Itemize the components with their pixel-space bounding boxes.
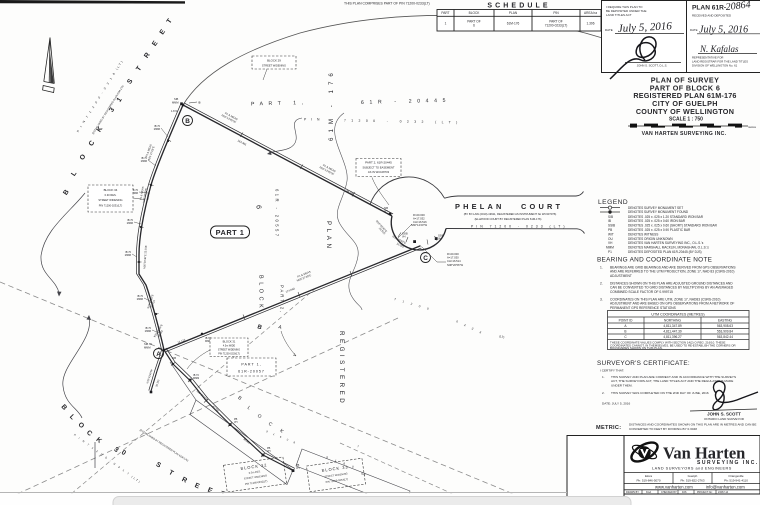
svg-text:PLAN: PLAN	[325, 221, 332, 252]
svg-text:ADJUSTMENT: ADJUSTMENT	[610, 274, 632, 278]
svg-text:PART 1: PART 1	[216, 228, 245, 237]
svg-text:REGISTERED: REGISTERED	[338, 331, 345, 406]
svg-text:DATE: JULY 5, 2016: DATE: JULY 5, 2016	[602, 402, 630, 406]
svg-text:ONTARIO LAND SURVEYOR: ONTARIO LAND SURVEYOR	[704, 417, 745, 421]
svg-text:0.30 RES.: 0.30 RES.	[105, 193, 117, 197]
svg-text:1.396: 1.396	[587, 22, 595, 26]
svg-text:AS IN WC108703: AS IN WC108703	[368, 170, 390, 174]
svg-text:1.: 1.	[602, 375, 605, 379]
svg-text:CH=16.516: CH=16.516	[413, 220, 427, 224]
svg-text:PIN 71200-0230(LT): PIN 71200-0230(LT)	[218, 353, 240, 356]
svg-text:6: 6	[255, 205, 264, 209]
svg-text:R=20.000: R=20.000	[447, 252, 459, 256]
svg-text:Guelph: Guelph	[688, 474, 698, 478]
svg-text:(ELLWOOD COURT BY REGISTERED P: (ELLWOOD COURT BY REGISTERED PLAN 61M-17…	[475, 217, 542, 221]
svg-text:P I N: P I N	[304, 118, 321, 122]
svg-text:DENOTES .025 x .025 x 0.60 IRO: DENOTES .025 x .025 x 0.60 IRON BAR	[628, 219, 686, 223]
svg-text:1: 1	[445, 22, 447, 26]
svg-text:MMM: MMM	[606, 246, 614, 250]
svg-text:R=20.000: R=20.000	[413, 213, 425, 217]
svg-text:PART 1,: PART 1,	[241, 363, 261, 367]
svg-text:VH: VH	[234, 421, 238, 424]
svg-text:DATE: DATE	[605, 28, 613, 32]
svg-text:PB: PB	[608, 228, 612, 232]
svg-text:DENOTES SURVEY MONUMENT SET: DENOTES SURVEY MONUMENT SET	[628, 206, 683, 210]
svg-text:STREET WIDENING: STREET WIDENING	[218, 349, 240, 352]
svg-text:METRIC:: METRIC:	[596, 425, 621, 431]
svg-text:THIS PLAN COMPRISES PART OF PI: THIS PLAN COMPRISES PART OF PIN 71200-02…	[344, 2, 430, 6]
svg-text:BLOCK 31: BLOCK 31	[223, 340, 236, 344]
svg-text:www.vanharten.com: www.vanharten.com	[655, 484, 693, 489]
svg-text:PART 2,: PART 2,	[280, 285, 285, 314]
svg-text:THIS SURVEY WAS COMPLETED ON T: THIS SURVEY WAS COMPLETED ON THE 2ND DAY…	[611, 391, 709, 395]
svg-text:BLOCK: BLOCK	[258, 275, 264, 311]
svg-text:MMM: MMM	[144, 345, 150, 349]
svg-text:BLOCK 34: BLOCK 34	[104, 188, 118, 192]
svg-text:JOHN S. SCOTT, O.L.S.: JOHN S. SCOTT, O.L.S.	[637, 64, 668, 68]
svg-text:VH: VH	[384, 210, 388, 213]
svg-text:(BY BY-LAW (2010)-19911, REGIS: (BY BY-LAW (2010)-19911, REGISTERED AS I…	[464, 212, 557, 216]
svg-text:IB: IB	[608, 219, 611, 223]
svg-text:KGA: KGA	[646, 491, 651, 494]
svg-text:MMM: MMM	[141, 160, 147, 163]
svg-text:DENOTES SURVEY MONUMENT FOUND: DENOTES SURVEY MONUMENT FOUND	[628, 210, 689, 214]
svg-text:Ph: 519-941-4110: Ph: 519-941-4110	[724, 479, 748, 483]
svg-text:SIB: SIB	[608, 215, 613, 219]
svg-text:PIN: PIN	[553, 11, 559, 15]
svg-text:23467-14: 23467-14	[718, 491, 729, 494]
svg-text:MMM: MMM	[154, 128, 160, 131]
svg-text:MMM: MMM	[145, 330, 151, 333]
svg-text:DENOTES MARSHALL MACKLIN, MONA: DENOTES MARSHALL MACKLIN, MONAGHAN, O.L.…	[628, 246, 709, 250]
svg-text:563,842.44: 563,842.44	[717, 335, 733, 339]
svg-text:Ph: 519-822-2763: Ph: 519-822-2763	[680, 479, 704, 483]
svg-text:VAN HARTEN SURVEYING INC.: VAN HARTEN SURVEYING INC.	[642, 131, 727, 137]
svg-text:563,908.63: 563,908.63	[717, 324, 733, 328]
svg-text:Elora: Elora	[645, 474, 652, 478]
svg-text:PART 2, 61R-20445: PART 2, 61R-20445	[365, 161, 392, 165]
svg-text:4.5m WIDE: 4.5m WIDE	[223, 345, 236, 348]
svg-text:PIN 71200-0231(LT): PIN 71200-0231(LT)	[99, 204, 123, 208]
svg-text:LAND SURVEYORS and ENGINEERS: LAND SURVEYORS and ENGINEERS	[652, 467, 732, 471]
svg-text:DENOTES .025 x .025 x 1.20 STA: DENOTES .025 x .025 x 1.20 STANDARD IRON…	[628, 215, 704, 219]
svg-text:N08°20'56"W: N08°20'56"W	[447, 263, 463, 267]
svg-text:STREET WIDENING: STREET WIDENING	[262, 64, 286, 68]
svg-text:BLOCK 29: BLOCK 29	[267, 59, 281, 63]
svg-text:A: A	[156, 351, 161, 358]
svg-text:DENOTES DEPOSITED PLAN 61R-204: DENOTES DEPOSITED PLAN 61R-20445 (BY DJS…	[628, 250, 702, 254]
svg-text:SCHEDULE: SCHEDULE	[487, 3, 550, 10]
svg-text:SIB: SIB	[174, 97, 178, 101]
svg-text:JOHN S. SCOTT: JOHN S. SCOTT	[707, 412, 741, 417]
svg-text:61M-176: 61M-176	[507, 22, 520, 26]
svg-text:WIT: WIT	[608, 232, 614, 236]
svg-text:DENOTES WITNESS: DENOTES WITNESS	[628, 232, 658, 236]
svg-text:PERMANENT GPS REFERENCE STATIO: PERMANENT GPS REFERENCE STATIONS	[610, 306, 677, 310]
svg-text:4,811,396.27: 4,811,396.27	[663, 335, 682, 339]
svg-text:61M - 176: 61M - 176	[328, 68, 335, 141]
svg-text:B: B	[624, 330, 626, 334]
svg-text:POINT ID: POINT ID	[619, 318, 633, 322]
svg-text:2.: 2.	[600, 282, 603, 286]
svg-text:DRAWN BY:: DRAWN BY:	[626, 491, 640, 494]
svg-text:COUNTY OF WELLINGTON: COUNTY OF WELLINGTON	[636, 107, 734, 116]
svg-text:SIB: SIB	[172, 357, 176, 360]
svg-text:6: 6	[473, 24, 475, 28]
svg-text:BLOCK: BLOCK	[469, 11, 481, 15]
svg-text:COMBINED SCALE FACTOR OF 0.999: COMBINED SCALE FACTOR OF 0.999715	[610, 290, 673, 294]
svg-text:61R - 20557: 61R - 20557	[275, 189, 280, 238]
svg-text:N66°14'20"W: N66°14'20"W	[411, 223, 427, 227]
svg-text:DIVISION OF WELLINGTON No. 61: DIVISION OF WELLINGTON No. 61	[692, 64, 738, 68]
svg-text:VH: VH	[267, 450, 271, 453]
svg-text:VH: VH	[296, 467, 300, 470]
svg-text:DENOTES ORIGIN UNKNOWN: DENOTES ORIGIN UNKNOWN	[628, 237, 673, 241]
svg-text:VH: VH	[608, 241, 613, 245]
svg-text:LAND TITLES ACT: LAND TITLES ACT	[606, 13, 632, 17]
svg-text:1.8 N: 1.8 N	[171, 109, 177, 113]
svg-text:PART: PART	[441, 11, 449, 15]
svg-text:CONVERTED TO FEET BY DIVIDING: CONVERTED TO FEET BY DIVIDING BY 0.3048	[629, 427, 697, 431]
svg-text:MMM: MMM	[172, 100, 178, 104]
svg-text:DENOTES .025 x .025 x 0.90 PLA: DENOTES .025 x .025 x 0.90 PLASTIC BAR	[628, 228, 691, 232]
svg-text:DATE: DATE	[690, 28, 698, 32]
svg-text:metres: metres	[748, 125, 757, 129]
svg-text:71200-0233(LT): 71200-0233(LT)	[545, 24, 568, 28]
svg-text:IB: IB	[198, 101, 201, 105]
svg-text:info@vanharten.com: info@vanharten.com	[706, 484, 745, 489]
svg-text:B: B	[185, 118, 190, 125]
svg-text:NORTHING: NORTHING	[664, 318, 681, 322]
svg-text:Ph: 519-846-5070: Ph: 519-846-5070	[636, 479, 660, 483]
svg-text:DENOTES VAN HARTEN SURVEYING I: DENOTES VAN HARTEN SURVEYING INC., O.L.S…	[628, 241, 704, 245]
svg-text:STREET WIDENING: STREET WIDENING	[98, 198, 122, 202]
svg-text:A=17.030: A=17.030	[447, 256, 459, 260]
svg-text:N. Kafalas: N. Kafalas	[699, 44, 739, 54]
svg-text:MMM: MMM	[127, 222, 133, 225]
svg-text:MMM: MMM	[137, 298, 143, 301]
svg-text:SIB 70: SIB 70	[144, 342, 152, 346]
svg-text:3.: 3.	[600, 298, 603, 302]
svg-text:SSIB: SSIB	[608, 224, 615, 228]
svg-text:MMM: MMM	[125, 254, 131, 257]
svg-text:UNDER THEM.: UNDER THEM.	[611, 383, 633, 387]
svg-text:OU: OU	[608, 237, 613, 241]
svg-text:PIN 71200 - 0233 (LT): PIN 71200 - 0233 (LT)	[471, 224, 567, 228]
svg-text:Orangeville: Orangeville	[728, 474, 744, 478]
svg-text:2.: 2.	[602, 391, 605, 395]
svg-text:AREA ha: AREA ha	[584, 11, 597, 15]
svg-text:PROJECT No:: PROJECT No:	[697, 491, 713, 494]
svg-text:LEGEND: LEGEND	[598, 199, 628, 206]
svg-text:C: C	[423, 255, 428, 262]
svg-text:RECEIVED AND DEPOSITED: RECEIVED AND DEPOSITED	[692, 14, 731, 18]
svg-text:VH: VH	[402, 236, 406, 239]
svg-text:CHECKED BY:: CHECKED BY:	[661, 491, 677, 494]
svg-text:VH: VH	[438, 238, 442, 241]
svg-text:DENOTES .025 x .025 x 0.60 (SH: DENOTES .025 x .025 x 0.60 (SHORT) STAND…	[628, 224, 718, 228]
svg-text:MMM: MMM	[193, 377, 199, 380]
svg-text:4,811,347.89: 4,811,347.89	[663, 324, 682, 328]
svg-text:I CERTIFY THAT:: I CERTIFY THAT:	[600, 369, 624, 373]
svg-text:EASTING: EASTING	[718, 318, 733, 322]
svg-text:UTM COORDINATES (METRES): UTM COORDINATES (METRES)	[651, 312, 704, 316]
svg-text:SCALE 1 : 750: SCALE 1 : 750	[669, 117, 703, 123]
svg-text:A=17.032: A=17.032	[413, 216, 425, 220]
svg-text:BEARING AND COORDINATE NOTE: BEARING AND COORDINATE NOTE	[597, 257, 712, 264]
svg-text:1.: 1.	[600, 266, 603, 270]
svg-text:PLAN 61R-: PLAN 61R-	[692, 5, 726, 12]
svg-text:4,811,447.39: 4,811,447.39	[663, 330, 682, 334]
svg-text:SURVEYOR'S CERTIFICATE:: SURVEYOR'S CERTIFICATE:	[597, 360, 690, 367]
svg-text:61R-20057: 61R-20057	[238, 370, 265, 374]
svg-text:DJS: DJS	[682, 491, 687, 494]
svg-text:P1: P1	[608, 250, 612, 254]
svg-text:PLAN: PLAN	[509, 11, 518, 15]
svg-text:SUBJECT TO EASEMENT: SUBJECT TO EASEMENT	[362, 165, 394, 169]
svg-text:CH=16.514: CH=16.514	[447, 259, 461, 263]
svg-text:563,909.84: 563,909.84	[717, 330, 733, 334]
svg-text:PHELAN: PHELAN	[455, 202, 505, 211]
svg-text:BOUNDARIES SHOWN ON THIS PLAN.: BOUNDARIES SHOWN ON THIS PLAN.	[610, 346, 663, 350]
svg-text:SURVEYING INC.: SURVEYING INC.	[697, 460, 759, 466]
svg-text:COURT: COURT	[521, 202, 563, 211]
